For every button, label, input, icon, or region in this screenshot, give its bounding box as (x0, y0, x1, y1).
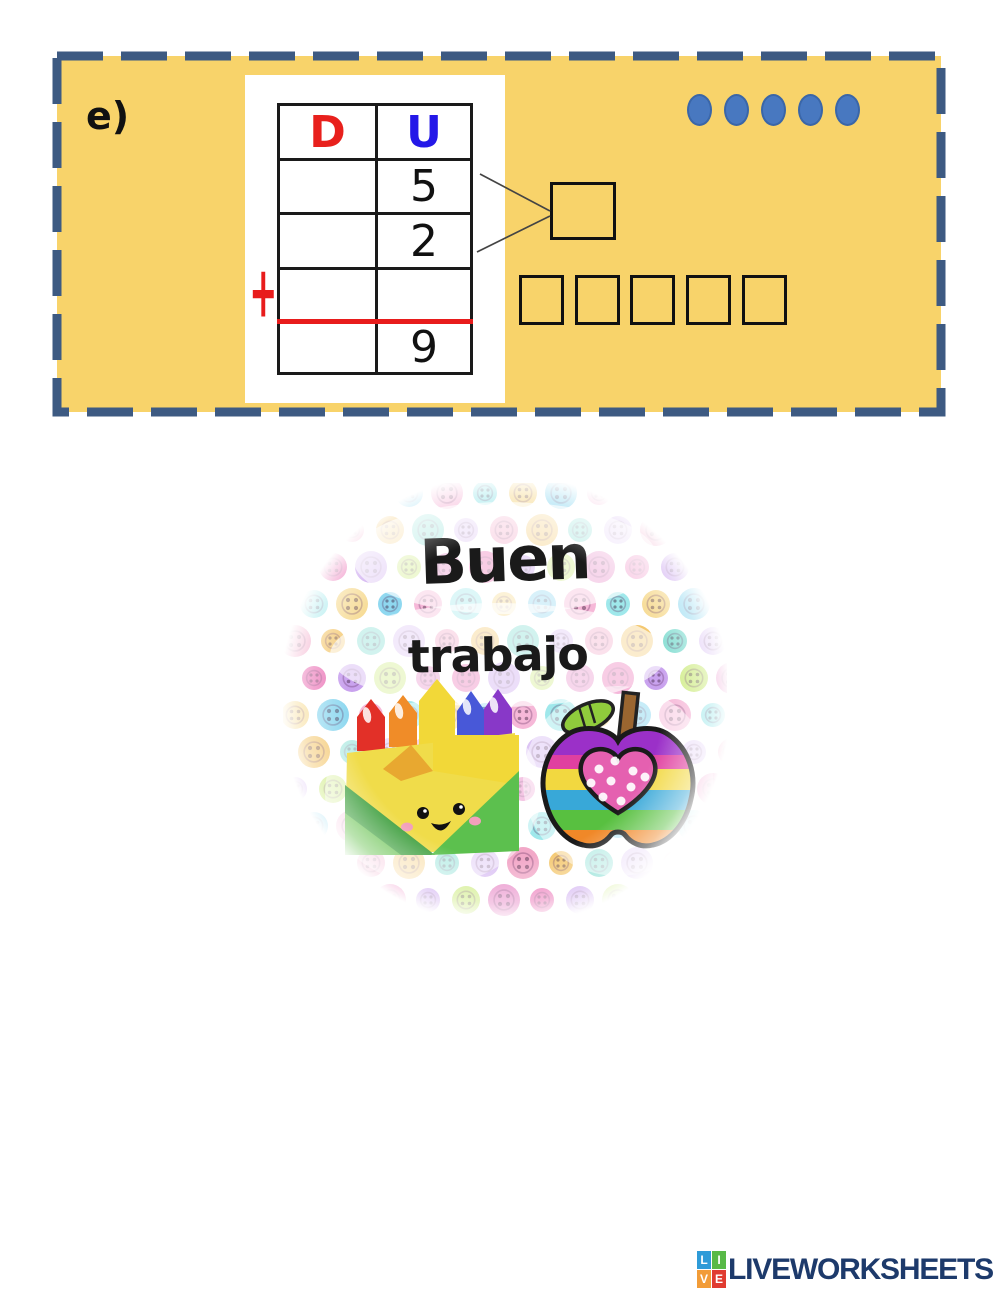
sum-line (277, 319, 473, 324)
answer-box-1[interactable] (519, 275, 564, 325)
answer-box-result[interactable] (550, 182, 616, 240)
crayon-box-illustration (345, 679, 519, 855)
counter-dot (687, 94, 712, 126)
liveworksheets-logo: L I V E LIVEWORKSHEETS (697, 1251, 993, 1288)
worksheet-page: e) D U 5 2 9 + (0, 0, 1000, 1291)
tens-cell-result (280, 322, 378, 373)
badge-text-line2: trabajo (407, 626, 588, 683)
item-label: e) (86, 94, 129, 138)
tens-cell-row1 (280, 161, 378, 215)
answer-box-2[interactable] (575, 275, 620, 325)
place-value-table: D U 5 2 9 (277, 103, 473, 375)
tens-cell-row2 (280, 215, 378, 270)
good-job-badge: Buen trabajo (283, 483, 727, 917)
logo-tile-v: V (697, 1270, 711, 1288)
logo-tile-e: E (712, 1270, 726, 1288)
units-cell-row3 (378, 270, 470, 322)
counter-dot (761, 94, 786, 126)
counter-dot (835, 94, 860, 126)
liveworksheets-logo-icon: L I V E (697, 1251, 726, 1288)
units-header: U (378, 106, 470, 161)
counter-dot (724, 94, 749, 126)
units-cell-row2: 2 (378, 215, 470, 270)
liveworksheets-logo-text: LIVEWORKSHEETS (728, 1251, 993, 1288)
logo-tile-l: L (697, 1251, 711, 1269)
units-cell-result: 9 (378, 322, 470, 373)
tens-header: D (280, 106, 378, 161)
units-cell-row1: 5 (378, 161, 470, 215)
plus-icon: + (249, 257, 273, 331)
answer-box-5[interactable] (742, 275, 787, 325)
answer-box-4[interactable] (686, 275, 731, 325)
answer-box-3[interactable] (630, 275, 675, 325)
counter-dot (798, 94, 823, 126)
logo-tile-i: I (712, 1251, 726, 1269)
tens-cell-row3 (280, 270, 378, 322)
badge-text-line1: Buen (419, 520, 591, 599)
